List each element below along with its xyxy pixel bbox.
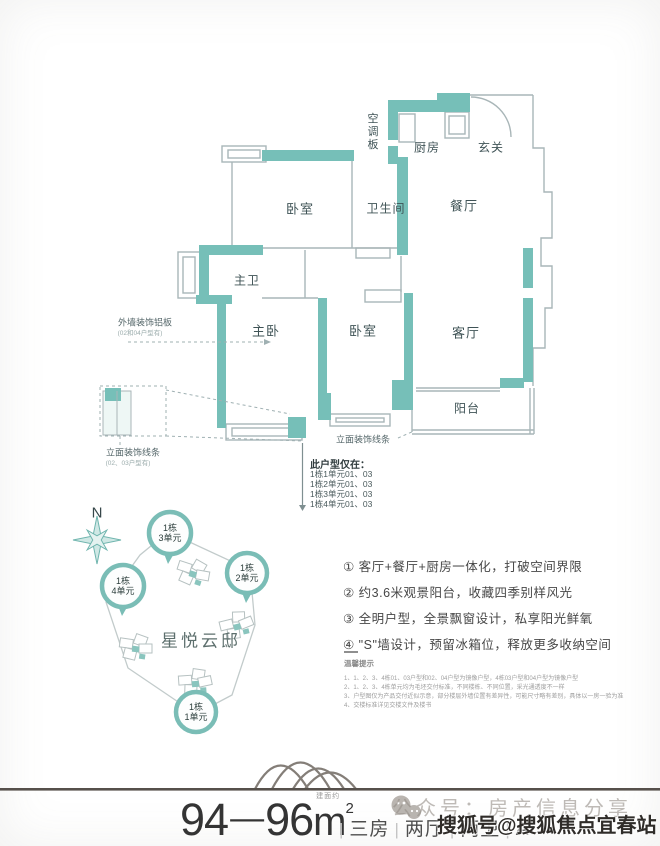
project-name: 星悦云邸 [161, 627, 241, 652]
unit-marker-label-1: 1栋 1单元 [184, 702, 207, 722]
room-label-balcony: 阳台 [454, 400, 480, 417]
room-label-dining: 餐厅 [450, 196, 478, 215]
feature-item: ② 约3.6米观景阳台，收藏四季别样风光 [343, 582, 573, 601]
availability-item: 1栋4单元01、03 [310, 498, 372, 510]
availability-bracket [299, 443, 306, 511]
facade-detail-inset [103, 388, 131, 435]
feature-item: ④ "S"墙设计，预留冰箱位，释放更多收纳空间 [343, 634, 611, 653]
tips-line: 4、交楼标准详见交楼文件及楼书 [344, 700, 431, 709]
area-dash: — [228, 799, 265, 837]
annotation-facade-line-mid: 立面装饰线条 [336, 433, 390, 446]
feature-item: ① 客厅+餐厅+厨房一体化，打破空间界限 [343, 556, 582, 575]
room-label-living: 客厅 [452, 323, 480, 342]
room-label-master-bedroom: 主卧 [252, 321, 280, 340]
poster-geometry [0, 0, 660, 846]
room-label-bedroom-top: 卧室 [286, 199, 314, 218]
annotation-facade-line-left-note: (02、03户型有) [106, 457, 151, 467]
footer-rule [0, 788, 660, 791]
area-range: 94—96建面约m2 [180, 797, 353, 842]
tips-divider [344, 651, 358, 653]
annotation-arrow [264, 339, 271, 345]
tips-line: 1、1、2、3、4栋01、03户型和02、04户型为镜像户型，4栋03户型和04… [344, 673, 578, 682]
room-label-bedroom-mid: 卧室 [349, 321, 377, 340]
feature-item: ③ 全明户型，全景飘窗设计，私享阳光鲜氧 [343, 608, 593, 627]
mountain-logo [255, 763, 356, 790]
annotation-lines [100, 342, 414, 446]
sohu-watermark: 搜狐号@搜狐焦点宜春站 [437, 809, 657, 838]
building-footprint [174, 554, 214, 590]
unit-marker-label-2: 1栋 2单元 [235, 563, 258, 583]
room-label-bathroom: 卫生间 [366, 200, 405, 217]
area-note: 建面约 [316, 793, 340, 800]
annotation-exterior-panel-note: (02和04户型有) [118, 327, 163, 337]
area-min: 94 [180, 794, 228, 845]
area-max: 96 [265, 794, 313, 845]
building-footprint [118, 631, 155, 662]
tips-line: 3、户型图仅为产品交付近似示意，部分楼层外墙位置有差异性，可能尺寸略有差别，具体… [344, 691, 623, 700]
compass-icon [73, 516, 121, 564]
site-plan [73, 512, 267, 732]
unit-marker-label-4: 1栋 4单元 [111, 576, 134, 596]
compass-n-label: N [92, 505, 103, 522]
tips-line: 2、1、2、3、4栋单元均为毛坯交付标准，不同楼栋、不同位置，采光通透度不一样 [344, 682, 565, 691]
spec-rooms: 三房 [349, 819, 389, 840]
tips-title: 温馨提示 [344, 658, 374, 669]
floor-plan [100, 93, 552, 511]
room-label-master-bath: 主卫 [234, 272, 260, 289]
room-label-kitchen: 厨房 [414, 139, 440, 156]
unit-marker-label-3: 1栋 3单元 [158, 523, 181, 543]
room-label-ac-panel: 空调板 [364, 113, 380, 152]
floorplan-poster: 空调板 厨房 玄关 卧室 卫生间 餐厅 主卫 主卧 卧室 客厅 阳台 外墙装饰铝… [0, 0, 660, 846]
room-label-entry: 玄关 [478, 139, 504, 156]
